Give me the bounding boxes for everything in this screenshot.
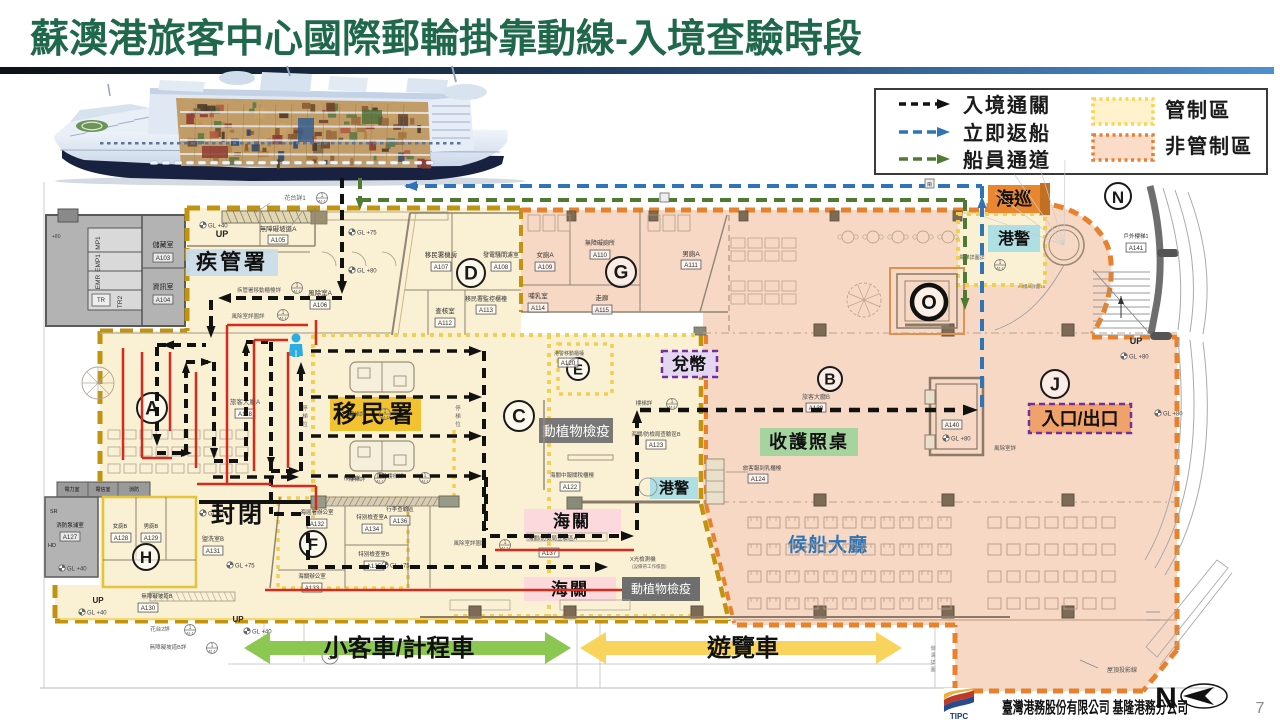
svg-text:戶外樓梯1: 戶外樓梯1 [1123, 232, 1148, 240]
svg-text:A130: A130 [141, 605, 156, 612]
svg-text:1: 1 [282, 310, 285, 316]
svg-text:UP: UP [1130, 336, 1143, 346]
svg-text:EMR: EMR [95, 274, 102, 289]
svg-text:小客車/計程車: 小客車/計程車 [324, 634, 475, 662]
svg-text:男廁B: 男廁B [144, 522, 159, 530]
svg-text:海巡: 海巡 [996, 188, 1033, 209]
svg-text:側: 側 [930, 645, 935, 652]
svg-text:GL +80: GL +80 [357, 269, 377, 275]
svg-text:儲藏室: 儲藏室 [153, 240, 174, 249]
svg-text:A105: A105 [271, 237, 286, 244]
svg-text:盥洗室B: 盥洗室B [202, 535, 224, 543]
svg-text:TR: TR [97, 298, 106, 304]
svg-text:GL +80: GL +80 [1129, 355, 1149, 361]
svg-text:D: D [464, 264, 478, 285]
svg-text:A141: A141 [1129, 245, 1144, 252]
svg-text:HD: HD [48, 543, 56, 549]
svg-text:風除室詳圖詳: 風除室詳圖詳 [453, 539, 487, 547]
svg-text:(設備帶工作檯面): (設備帶工作檯面) [632, 563, 667, 570]
svg-text:GL +75: GL +75 [235, 564, 255, 570]
svg-text:A134: A134 [365, 526, 380, 533]
svg-text:UP: UP [216, 229, 229, 239]
svg-text:疾管署: 疾管署 [196, 250, 268, 274]
svg-text:風除室詳: 風除室詳 [994, 444, 1017, 452]
svg-text:H: H [140, 548, 152, 567]
svg-text:港警: 港警 [998, 229, 1030, 248]
svg-text:C: C [512, 407, 526, 428]
svg-text:A1-1: A1-1 [293, 290, 301, 294]
svg-text:A140: A140 [945, 422, 960, 429]
svg-text:立即返船: 立即返船 [963, 121, 1051, 145]
svg-text:港警移動櫃檯: 港警移動櫃檯 [554, 350, 584, 357]
svg-text:A113: A113 [479, 307, 494, 314]
svg-text:特別檢查室B: 特別檢查室B [358, 550, 390, 558]
svg-text:女廁B: 女廁B [113, 522, 128, 530]
svg-text:A1-1: A1-1 [279, 317, 287, 321]
svg-text:入口/出口: 入口/出口 [1040, 408, 1118, 429]
svg-text:A127: A127 [63, 534, 78, 541]
svg-text:7: 7 [1256, 700, 1265, 717]
svg-text:位: 位 [302, 420, 308, 428]
svg-text:A1-1: A1-1 [996, 267, 1004, 271]
svg-text:特別檢查室A: 特別檢查室A [356, 513, 388, 521]
svg-text:溝: 溝 [930, 652, 935, 659]
svg-text:A136: A136 [393, 518, 408, 525]
svg-text:查核室: 查核室 [435, 306, 455, 315]
svg-text:G: G [614, 263, 629, 284]
svg-text:A120: A120 [561, 360, 576, 367]
svg-text:無障礙坡道B: 無障礙坡道B [141, 592, 173, 600]
svg-text:GL +40: GL +40 [87, 611, 107, 617]
svg-text:花台2詳: 花台2詳 [150, 625, 170, 633]
svg-text:A108: A108 [494, 264, 509, 271]
svg-text:e4樓at詳圖1a: e4樓at詳圖1a [1018, 283, 1046, 290]
svg-text:N: N [1155, 682, 1177, 715]
svg-text:1: 1 [321, 193, 324, 199]
svg-text:梯: 梯 [455, 412, 461, 420]
svg-text:圖: 圖 [930, 667, 935, 673]
svg-text:樓梯詳: 樓梯詳 [349, 410, 366, 418]
svg-text:無障礙坡道B詳: 無障礙坡道B詳 [150, 643, 187, 651]
svg-text:A107: A107 [434, 264, 449, 271]
svg-text:J: J [1050, 374, 1060, 394]
svg-text:A122: A122 [563, 484, 578, 491]
svg-text:非管制區: 非管制區 [1165, 134, 1253, 158]
svg-text:樓梯詳: 樓梯詳 [636, 399, 653, 407]
svg-text:海關: 海關 [553, 511, 591, 531]
svg-text:A106: A106 [313, 302, 328, 309]
svg-text:+80: +80 [52, 234, 61, 240]
svg-text:A103: A103 [156, 255, 171, 262]
svg-text:移民署: 移民署 [333, 400, 417, 428]
svg-text:A124: A124 [751, 476, 766, 483]
svg-text:消防: 消防 [129, 486, 139, 493]
svg-text:港警: 港警 [659, 479, 689, 497]
svg-text:A1-1: A1-1 [421, 480, 429, 484]
svg-text:兌幣: 兌幣 [671, 354, 706, 374]
svg-text:EMP1: EMP1 [95, 254, 102, 272]
svg-text:A1-1: A1-1 [186, 632, 194, 636]
svg-text:A115: A115 [595, 307, 610, 314]
svg-text:1: 1 [296, 283, 299, 289]
svg-text:旅客大廳B: 旅客大廳B [802, 393, 830, 401]
svg-text:A109: A109 [538, 264, 553, 271]
svg-text:UP: UP [92, 596, 104, 605]
svg-text:入境通關: 入境通關 [963, 93, 1051, 117]
svg-text:停: 停 [302, 404, 308, 412]
svg-text:A1-1: A1-1 [208, 650, 216, 654]
svg-text:A128: A128 [114, 535, 129, 542]
svg-text:梯: 梯 [302, 412, 308, 420]
svg-text:無障礙坡道A: 無障礙坡道A [260, 224, 298, 233]
svg-text:O: O [921, 292, 937, 314]
svg-text:旅客報到乳櫃檯: 旅客報到乳櫃檯 [743, 464, 782, 472]
svg-text:收護照桌: 收護照桌 [769, 431, 849, 452]
svg-text:1: 1 [424, 473, 427, 479]
svg-text:屋頂投影線: 屋頂投影線 [1107, 666, 1137, 674]
svg-text:走廊: 走廊 [596, 293, 610, 302]
svg-text:發電騷間濾室: 發電騷間濾室 [483, 251, 519, 259]
svg-text:移民署監控櫃檯: 移民署監控櫃檯 [465, 295, 507, 303]
svg-text:電力室: 電力室 [64, 486, 79, 493]
svg-text:電信室: 電信室 [95, 486, 110, 493]
svg-text:1: 1 [999, 260, 1002, 266]
svg-text:MP1: MP1 [95, 236, 102, 250]
svg-text:1: 1 [189, 625, 192, 631]
svg-text:A112: A112 [438, 320, 453, 327]
svg-text:詳: 詳 [930, 659, 935, 666]
svg-text:風除室詳圖詳: 風除室詳圖詳 [231, 312, 265, 320]
svg-text:停: 停 [455, 404, 461, 412]
svg-text:海關辦公室: 海關辦公室 [298, 572, 326, 580]
svg-text:TIPC: TIPC [950, 712, 968, 720]
svg-text:A123: A123 [649, 442, 664, 449]
svg-text:海關中報關稅櫃檯: 海關中報關稅櫃檯 [550, 471, 595, 479]
svg-text:A131: A131 [206, 548, 221, 555]
svg-text:GL +40: GL +40 [208, 224, 228, 230]
svg-text:花台詳1: 花台詳1 [284, 194, 306, 202]
svg-text:SR: SR [50, 509, 58, 515]
svg-text:GL +80: GL +80 [1163, 412, 1183, 418]
svg-text:1: 1 [384, 409, 387, 415]
svg-text:GL +80: GL +80 [951, 437, 971, 443]
svg-text:A1-1: A1-1 [381, 416, 389, 420]
svg-text:無障礙廁所: 無障礙廁所 [585, 239, 615, 247]
svg-text:A1-1: A1-1 [376, 480, 384, 484]
svg-text:1: 1 [671, 399, 674, 405]
svg-text:風除室A: 風除室A [308, 288, 333, 297]
svg-text:A110: A110 [593, 252, 608, 259]
svg-text:GL +75: GL +75 [357, 231, 377, 237]
svg-text:男廁A: 男廁A [682, 249, 700, 258]
svg-text:消防泵浦室: 消防泵浦室 [56, 521, 84, 529]
svg-text:TR2: TR2 [117, 295, 124, 308]
svg-text:A132: A132 [310, 521, 325, 528]
svg-text:資訊室: 資訊室 [153, 282, 174, 291]
svg-text:X光檢測機: X光檢測機 [630, 555, 656, 563]
svg-text:動植物檢疫: 動植物檢疫 [631, 581, 691, 596]
svg-text:A1-1: A1-1 [318, 200, 326, 204]
svg-text:蘇澳港旅客中心國際郵輪掛靠動線-入境查驗時段: 蘇澳港旅客中心國際郵輪掛靠動線-入境查驗時段 [30, 18, 862, 61]
svg-text:UP: UP [232, 615, 244, 624]
svg-text:位: 位 [455, 420, 461, 428]
svg-text:疾管署移動櫃檯詳: 疾管署移動櫃檯詳 [237, 286, 282, 294]
svg-text:GL +40: GL +40 [67, 567, 87, 573]
svg-text:A104: A104 [156, 297, 171, 304]
svg-text:女廁A: 女廁A [536, 250, 554, 259]
svg-text:A129: A129 [144, 535, 159, 542]
svg-text:A111: A111 [684, 262, 698, 269]
svg-text:B: B [824, 372, 836, 389]
svg-text:船員通道: 船員通道 [963, 148, 1051, 172]
svg-text:1: 1 [211, 643, 214, 649]
svg-text:哺乳室: 哺乳室 [528, 291, 548, 300]
svg-text:管制區: 管制區 [1165, 98, 1231, 122]
svg-text:移民署機房: 移民署機房 [425, 250, 458, 259]
svg-text:動植物檢疫: 動植物檢疫 [542, 423, 610, 439]
svg-text:封閉: 封閉 [211, 501, 265, 528]
svg-text:遊覽車: 遊覽車 [706, 634, 779, 662]
svg-text:A114: A114 [531, 305, 546, 312]
svg-text:1: 1 [504, 540, 507, 546]
svg-text:N: N [1112, 188, 1124, 207]
